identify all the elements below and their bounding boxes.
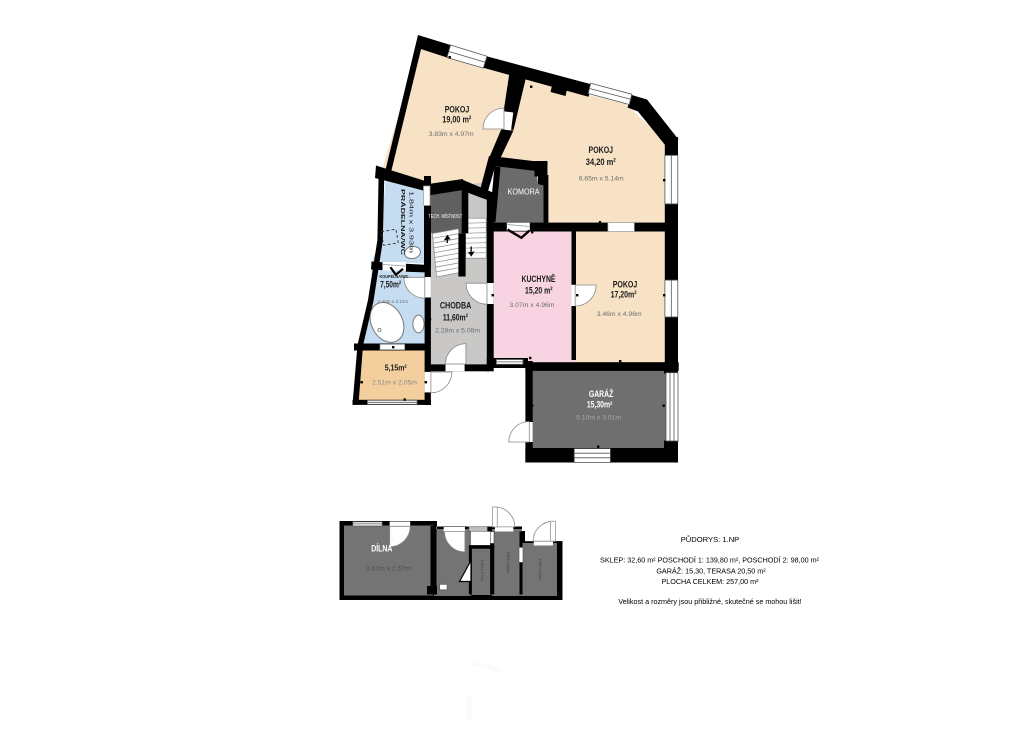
svg-text:15,30m²: 15,30m² (587, 399, 613, 409)
svg-text:19,00 m²: 19,00 m² (442, 114, 471, 125)
svg-text:1.15m x 2.71m: 1.15m x 2.71m (480, 559, 484, 580)
svg-text:KUCHYNĚ: KUCHYNĚ (522, 273, 556, 285)
svg-text:3.07m x 4.96m: 3.07m x 4.96m (510, 302, 555, 309)
svg-text:5,15m²: 5,15m² (385, 363, 407, 373)
svg-text:PŮDORYS: 1.NP: PŮDORYS: 1.NP (681, 535, 740, 544)
svg-text:1.90m x 2.80m: 1.90m x 2.80m (538, 558, 542, 579)
svg-text:11,60m²: 11,60m² (443, 312, 468, 323)
svg-text:6.65m x 5.14m: 6.65m x 5.14m (579, 175, 624, 182)
svg-text:SKLEP: 32,60 m² POSCHODÍ 1: 13: SKLEP: 32,60 m² POSCHODÍ 1: 139,80 m², P… (600, 556, 820, 565)
svg-text:3.46m x 4.96m: 3.46m x 4.96m (597, 311, 642, 318)
svg-text:2.51m x 2.05m: 2.51m x 2.05m (372, 380, 417, 387)
svg-text:TECH. MÍSTNOST: TECH. MÍSTNOST (428, 213, 462, 220)
svg-text:1.84m x 3.93m: 1.84m x 3.93m (408, 191, 414, 253)
svg-text:15,20 m²: 15,20 m² (525, 286, 553, 297)
svg-text:Velikost a rozměry jsou přibli: Velikost a rozměry jsou přibližné, skute… (618, 597, 801, 606)
svg-text:PRÁDELNA/WC: PRÁDELNA/WC (399, 189, 406, 255)
svg-text:PLOCHA CELKEM: 257,00 m²: PLOCHA CELKEM: 257,00 m² (661, 577, 759, 586)
svg-text:7,50m²: 7,50m² (380, 280, 401, 290)
svg-text:2.40m x 3.12m: 2.40m x 3.12m (378, 299, 409, 304)
svg-text:CHODBA: CHODBA (440, 300, 472, 311)
svg-text:5.10m x 3.01m: 5.10m x 3.01m (576, 415, 621, 422)
svg-text:DÍLNA: DÍLNA (371, 543, 392, 553)
svg-text:17,20m²: 17,20m² (611, 289, 637, 300)
svg-text:3.51m x 2.57m: 3.51m x 2.57m (366, 566, 411, 573)
svg-text:POKOJ: POKOJ (589, 145, 614, 156)
svg-text:2.28m x 5.08m: 2.28m x 5.08m (435, 327, 480, 334)
svg-text:GARÁŽ: GARÁŽ (589, 388, 614, 399)
svg-text:KOMORA: KOMORA (508, 187, 541, 196)
svg-text:3.83m x 4.97m: 3.83m x 4.97m (429, 131, 474, 138)
svg-text:1.65m x 3.60m: 1.65m x 3.60m (506, 551, 510, 572)
svg-text:KOUPELNA/WC: KOUPELNA/WC (380, 274, 410, 279)
svg-text:34,20 m²: 34,20 m² (586, 157, 616, 168)
svg-text:GARÁŽ: 15,30, TERASA 20,50 m²: GARÁŽ: 15,30, TERASA 20,50 m² (656, 567, 766, 576)
